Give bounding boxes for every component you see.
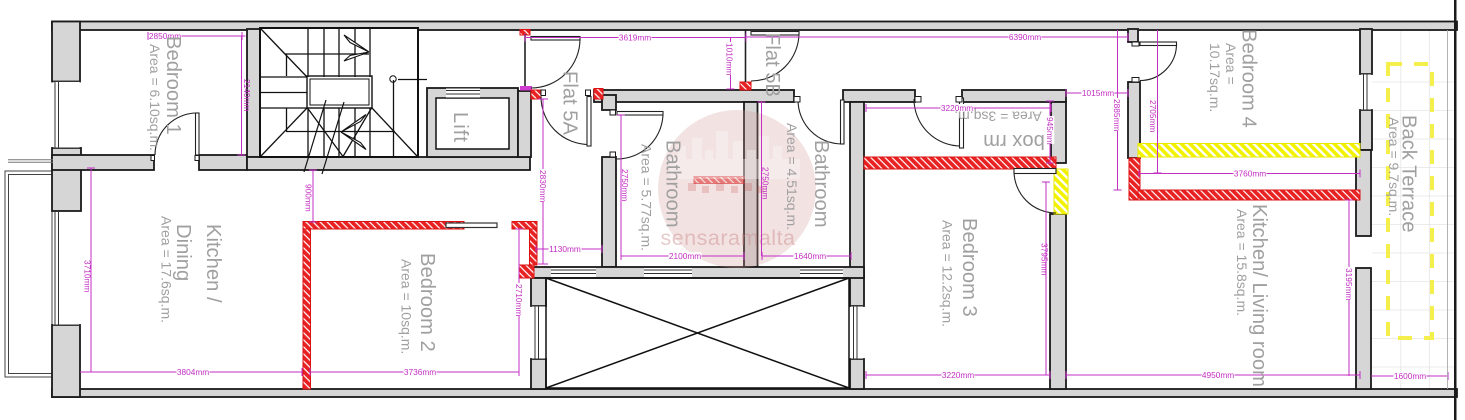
- svg-text:1130mm: 1130mm: [549, 244, 581, 254]
- svg-text:Area = 10sq.m.: Area = 10sq.m.: [399, 259, 415, 354]
- svg-text:900mm: 900mm: [304, 184, 314, 212]
- svg-text:Area = 17.6sq.m.: Area = 17.6sq.m.: [158, 216, 174, 323]
- svg-text:Area = 5.77sq.m.: Area = 5.77sq.m.: [639, 144, 655, 251]
- svg-text:1015mm: 1015mm: [1082, 88, 1114, 98]
- svg-text:Area = 4.51sq.m.: Area = 4.51sq.m.: [784, 123, 800, 230]
- svg-text:3804mm: 3804mm: [177, 367, 209, 377]
- svg-text:Dining: Dining: [172, 224, 194, 281]
- svg-text:Bathroom: Bathroom: [810, 140, 832, 228]
- svg-text:Bedroom 4: Bedroom 4: [1238, 29, 1260, 128]
- svg-text:3195mm: 3195mm: [1344, 268, 1354, 300]
- svg-text:1640mm: 1640mm: [794, 251, 826, 261]
- svg-text:2750mm: 2750mm: [620, 169, 630, 201]
- svg-text:sensaramalta: sensaramalta: [660, 226, 795, 250]
- svg-text:2705mm: 2705mm: [1148, 100, 1158, 132]
- svg-text:Area = 12.2sq.m.: Area = 12.2sq.m.: [940, 220, 956, 327]
- svg-text:2830mm: 2830mm: [538, 170, 548, 202]
- svg-text:10.17sq.m.: 10.17sq.m.: [1207, 43, 1223, 112]
- svg-text:Bedroom 2: Bedroom 2: [416, 253, 438, 352]
- svg-text:Area = 3sq.m.: Area = 3sq.m.: [954, 109, 1042, 125]
- svg-text:6390mm: 6390mm: [1009, 32, 1041, 42]
- svg-text:3710mm: 3710mm: [83, 260, 93, 292]
- svg-text:Bedroom 1: Bedroom 1: [162, 36, 184, 135]
- svg-text:Kitchen /: Kitchen /: [202, 224, 224, 303]
- svg-text:3736mm: 3736mm: [404, 367, 436, 377]
- svg-text:3619mm: 3619mm: [619, 33, 651, 43]
- svg-text:Area =: Area =: [1223, 43, 1239, 85]
- svg-text:2710mm: 2710mm: [514, 284, 524, 316]
- svg-text:Bedroom 3: Bedroom 3: [958, 218, 980, 317]
- svg-text:Area = 15.8sq.m.: Area = 15.8sq.m.: [1234, 209, 1250, 316]
- svg-text:4950mm: 4950mm: [1202, 370, 1234, 380]
- svg-text:Lift: Lift: [449, 112, 471, 143]
- svg-text:1010mm: 1010mm: [725, 43, 735, 75]
- svg-text:Area = 9.7sq.m.: Area = 9.7sq.m.: [1386, 117, 1402, 216]
- svg-text:2750mm: 2750mm: [761, 167, 771, 199]
- svg-text:Flat 5A: Flat 5A: [559, 71, 581, 135]
- svg-text:3760mm: 3760mm: [1234, 169, 1266, 179]
- svg-text:3220mm: 3220mm: [942, 370, 974, 380]
- svg-text:Area = 6.10sq.m.: Area = 6.10sq.m.: [147, 44, 163, 151]
- svg-text:2100mm: 2100mm: [669, 251, 701, 261]
- svg-text:Flat 5B: Flat 5B: [761, 33, 783, 97]
- svg-text:Bathroom: Bathroom: [662, 140, 684, 228]
- svg-text:box rm: box rm: [983, 130, 1045, 152]
- svg-text:2140mm: 2140mm: [242, 79, 252, 111]
- svg-text:945mm: 945mm: [1045, 117, 1055, 145]
- svg-text:1600mm: 1600mm: [1394, 371, 1426, 381]
- svg-text:2885mm: 2885mm: [1112, 99, 1122, 131]
- svg-text:3795mm: 3795mm: [1040, 243, 1050, 275]
- svg-text:Kitchen/ Living room: Kitchen/ Living room: [1248, 204, 1270, 387]
